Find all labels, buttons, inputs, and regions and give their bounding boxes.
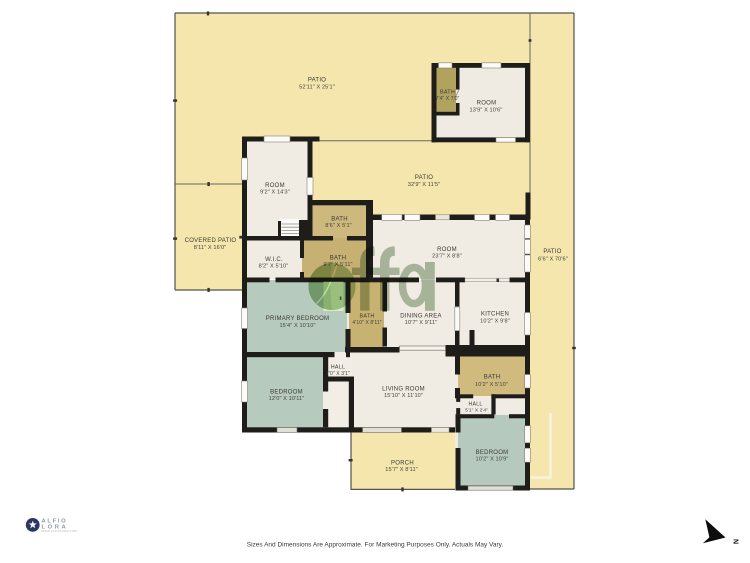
svg-text:7'4" X 7'0": 7'4" X 7'0" (436, 96, 460, 102)
svg-text:HALL: HALL (469, 402, 483, 408)
svg-text:4'10" X 8'11": 4'10" X 8'11" (352, 320, 381, 326)
svg-text:7'0" X 3'1": 7'0" X 3'1" (326, 371, 350, 377)
svg-text:8'6" X 5'1": 8'6" X 5'1" (325, 223, 352, 229)
svg-text:Sizes And Dimensions Are Appro: Sizes And Dimensions Are Approximate. Fo… (247, 542, 504, 549)
svg-text:ROOM: ROOM (265, 183, 285, 189)
svg-text:PATIO: PATIO (543, 249, 561, 255)
svg-text:12'0" X 10'11": 12'0" X 10'11" (269, 396, 305, 402)
svg-text:BATH: BATH (484, 375, 501, 381)
svg-text:32'9" X 11'5": 32'9" X 11'5" (408, 182, 441, 188)
svg-text:LIVING ROOM: LIVING ROOM (382, 387, 425, 393)
svg-text:15'10" X 11'10": 15'10" X 11'10" (384, 393, 423, 399)
svg-text:HALL: HALL (331, 365, 346, 371)
svg-text:ROOM: ROOM (477, 101, 497, 107)
svg-text:9'2" X 14'3": 9'2" X 14'3" (260, 190, 290, 196)
svg-text:23'7" X 8'8": 23'7" X 8'8" (432, 254, 462, 260)
svg-text:6'6" X 70'6": 6'6" X 70'6" (538, 257, 568, 263)
svg-text:10'2" X 10'9": 10'2" X 10'9" (476, 457, 509, 463)
svg-text:PATIO: PATIO (308, 78, 326, 84)
svg-text:BEDROOM: BEDROOM (270, 390, 303, 396)
svg-text:10'7" X 9'11": 10'7" X 9'11" (405, 320, 438, 326)
svg-text:BATH: BATH (330, 256, 347, 262)
svg-text:DINING AREA: DINING AREA (400, 314, 441, 320)
svg-text:BEDROOM: BEDROOM (476, 450, 509, 456)
svg-text:COVERED PATIO: COVERED PATIO (185, 238, 237, 244)
svg-text:13'9" X 10'6": 13'9" X 10'6" (470, 108, 503, 114)
svg-text:W.I.C.: W.I.C. (265, 257, 283, 263)
svg-text:15'7" X 8'11": 15'7" X 8'11" (385, 467, 418, 473)
svg-text:8'2" X 5'10": 8'2" X 5'10" (259, 264, 289, 270)
svg-text:52'11" X 25'1": 52'11" X 25'1" (299, 85, 335, 91)
svg-text:KITCHEN: KITCHEN (481, 312, 509, 318)
svg-text:PRIMARY BEDROOM: PRIMARY BEDROOM (266, 316, 330, 322)
svg-text:10'2" X 5'10": 10'2" X 5'10" (475, 382, 508, 388)
svg-text:WWW.ALFIOLORA.COM: WWW.ALFIOLORA.COM (42, 529, 77, 533)
svg-text:5'1" X 2'4": 5'1" X 2'4" (465, 408, 488, 414)
svg-text:PATIO: PATIO (415, 175, 433, 181)
svg-text:ALFIO: ALFIO (42, 519, 68, 525)
svg-text:15'4" X 10'10": 15'4" X 10'10" (279, 323, 315, 329)
svg-text:8'11" X 16'0": 8'11" X 16'0" (194, 245, 227, 251)
svg-text:ROOM: ROOM (437, 247, 457, 253)
svg-text:PORCH: PORCH (391, 461, 414, 467)
svg-text:N: N (732, 539, 739, 544)
svg-text:BATH: BATH (331, 217, 348, 223)
svg-text:BATH: BATH (360, 314, 375, 320)
svg-text:BATH: BATH (440, 90, 455, 96)
svg-text:10'2" X 9'8": 10'2" X 9'8" (480, 319, 510, 325)
